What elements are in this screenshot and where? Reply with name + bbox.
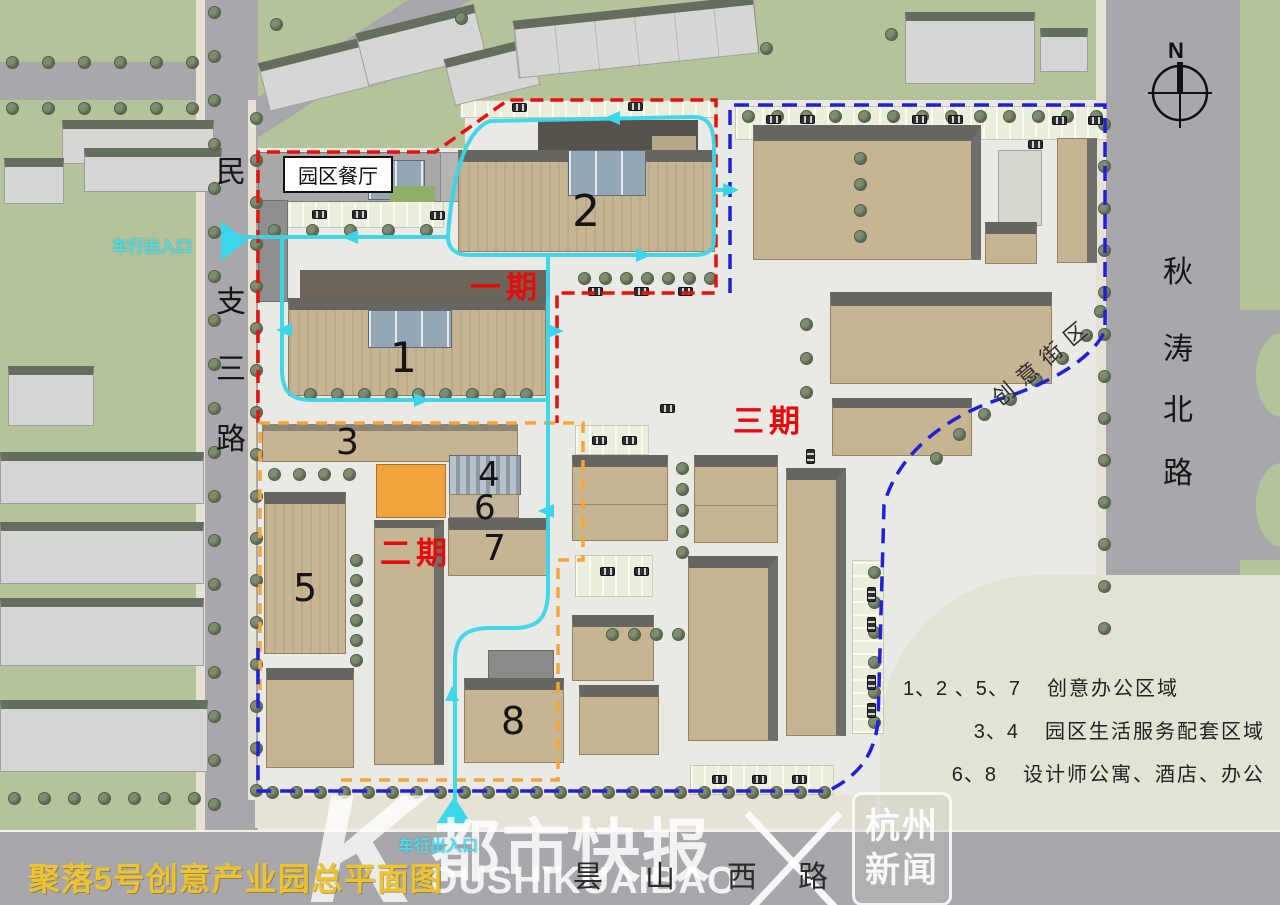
phase3-building-a [753,125,981,260]
entrance-west-label: 车行出入口 [112,233,192,257]
legend-row: 3、4 园区生活服务配套区域 [893,715,1265,744]
legend-label: 设计师公寓、酒店、办公 [1023,758,1265,787]
tree-icon [343,468,356,481]
tree-icon [268,468,281,481]
tree-icon [350,654,363,667]
tree-icon [578,272,591,285]
building-5-south [266,668,354,768]
north-label: N [1168,38,1184,64]
restaurant-green-roof [390,186,435,202]
tree-icon [350,574,363,587]
tree-icon [350,594,363,607]
legend-label: 园区生活服务配套区域 [1045,715,1265,744]
phase3-building-f [572,455,668,541]
road-east-char: 北 [1163,396,1193,426]
building-5-label: 5 [293,566,317,610]
road-west-char: 民 [216,158,246,188]
building-2-label: 2 [572,186,600,237]
tree-icon [683,272,696,285]
building-1-label: 1 [390,333,417,382]
tree-icon [641,272,654,285]
car-icon [1028,140,1043,149]
site-plan-map: N 民 支 三 路 秋 涛 北 路 昙 山 西 路 创意街区 一期 二期 三期 … [0,0,1280,905]
tree-icon [350,554,363,567]
legend-nums: 1、2 、5、7 [893,672,1021,701]
road-east-char: 涛 [1163,335,1193,365]
context-building [8,366,94,426]
phase3-building-h [572,615,654,681]
phase3-building-e [832,398,972,456]
car-icon [806,449,815,464]
tree-icon [350,634,363,647]
road-west-char: 支 [216,288,246,318]
tree-icon [676,504,689,517]
context-building [1040,28,1088,72]
road-west-char: 路 [216,425,246,455]
restaurant-label: 园区餐厅 [283,156,393,193]
legend-nums: 3、4 [893,715,1019,744]
tree-icon [704,272,717,285]
tree-icon [800,318,813,331]
tree-icon [318,468,331,481]
map-title: 聚落5号创意产业园总平面图 [28,854,443,900]
context-building [84,148,222,192]
car-icon [660,404,675,413]
context-building [0,598,204,666]
car-icon [634,287,649,296]
legend-nums: 6、8 [893,758,997,787]
legend-row: 1、2 、5、7 创意办公区域 [893,672,1265,701]
watermark-hz-line1: 杭州 [865,805,939,849]
phase3-building-i [579,685,659,755]
phase3-building-j [688,556,778,741]
phase3-building-g [694,455,778,543]
basketball-courts [998,150,1042,226]
road-east-char: 路 [1163,459,1193,489]
parking-center-2 [575,555,653,597]
service-tower [258,200,288,302]
context-building [905,12,1035,84]
sidewalk-east [1096,0,1106,585]
entrance-south-label: 车行出入口 [398,832,478,856]
building-orange [376,464,446,518]
car-icon [588,287,603,296]
tree-icon [800,352,813,365]
building-7-label: 7 [483,528,506,569]
legend-label: 创意办公区域 [1047,672,1179,701]
tree-icon [599,272,612,285]
sidewalk-south [255,795,875,828]
context-building [0,522,204,584]
road-south-char: 路 [798,863,828,893]
building-8-label: 8 [501,699,525,743]
parking-center-1 [575,425,649,455]
context-building [0,700,208,772]
watermark-hangzhou-news: 杭州 新闻 [852,792,952,905]
tree-icon [293,468,306,481]
building-6-label: 6 [474,488,496,528]
phase3-building-c [985,222,1037,264]
phase2-label: 二期 [380,528,452,573]
road-west-char: 三 [216,355,246,385]
road-south-char: 山 [645,863,675,893]
legend: 1、2 、5、7 创意办公区域 3、4 园区生活服务配套区域 6、8 设计师公寓… [893,672,1265,801]
phase3-building-b [1057,138,1097,263]
car-icon [678,287,693,296]
road-south-char: 昙 [573,863,603,893]
tree-icon [620,272,633,285]
tree-icon [676,525,689,538]
road-south-char: 西 [727,863,757,893]
parking-east-strip [852,560,884,734]
road-east-char: 秋 [1163,258,1193,288]
building-3-label: 3 [336,422,359,463]
road-east-ramp [1240,310,1280,560]
road-east-vertical [1106,0,1240,585]
tree-icon [978,408,991,421]
parking-south [690,765,834,795]
sidewalk-west-inner [248,100,256,800]
phase1-label: 一期 [470,262,542,307]
tree-icon [662,272,675,285]
tree-icon [672,628,685,641]
context-building [0,452,204,504]
tree-icon [676,462,689,475]
tree-icon [676,483,689,496]
legend-row: 6、8 设计师公寓、酒店、办公 [893,758,1265,787]
road-northwest-horizontal [0,62,207,100]
context-building [4,158,64,204]
phase3-label: 三期 [733,396,805,441]
phase3-building-k [786,468,846,736]
parking-b2-top [460,100,717,118]
tree-icon [350,614,363,627]
watermark-hz-line2: 新闻 [865,849,939,893]
